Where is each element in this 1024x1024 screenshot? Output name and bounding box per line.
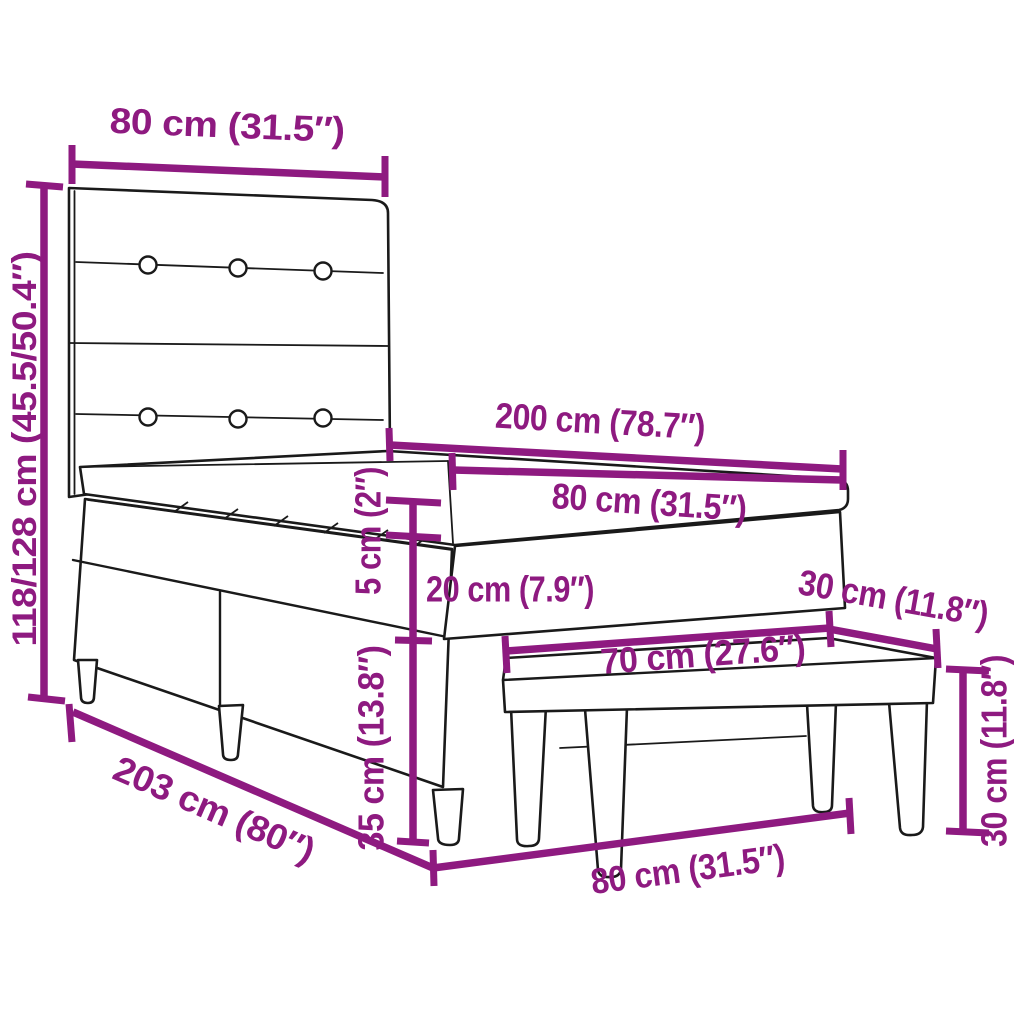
dimension-bench-height: 30 cm (11.8″) xyxy=(946,655,1015,847)
button xyxy=(140,409,157,426)
bench-leg xyxy=(889,700,927,835)
bench-leg xyxy=(511,706,546,846)
headboard-panel xyxy=(69,188,390,497)
bench-illustration xyxy=(503,638,936,877)
dim-label-mattress-length: 200 cm (78.7″) xyxy=(494,395,706,448)
dim-label-mattress-thickness: 20 cm (7.9″) xyxy=(426,569,594,610)
dimension-diagram: 80 cm (31.5″) 118/128 cm (45.5/50.4″) 20… xyxy=(0,0,1024,1024)
dim-label-base-height: 35 cm (13.8″) xyxy=(351,646,392,851)
button xyxy=(315,410,332,427)
bed-with-bench-drawing: 80 cm (31.5″) 118/128 cm (45.5/50.4″) 20… xyxy=(0,0,1024,1024)
dimension-bed-height: 118/128 cm (45.5/50.4″) xyxy=(6,184,65,701)
dimension-bed-width-bottom: 80 cm (31.5″) xyxy=(433,798,851,902)
headboard xyxy=(69,188,390,497)
dim-label-bench-depth: 30 cm (11.8″) xyxy=(795,561,991,635)
dim-label-headboard-width: 80 cm (31.5″) xyxy=(109,100,345,150)
dim-label-topper-thickness: 5 cm (2″) xyxy=(348,467,389,595)
dimension-headboard-width: 80 cm (31.5″) xyxy=(72,100,385,197)
bed-leg xyxy=(433,789,463,845)
button xyxy=(140,257,157,274)
bed-leg xyxy=(219,705,243,760)
button xyxy=(230,260,247,277)
button xyxy=(230,411,247,428)
dim-label-bed-height: 118/128 cm (45.5/50.4″) xyxy=(6,252,44,647)
button xyxy=(315,263,332,280)
bench-leg xyxy=(585,707,627,877)
bed-leg xyxy=(78,660,97,703)
bench-leg xyxy=(807,702,836,812)
dim-label-bench-height: 30 cm (11.8″) xyxy=(974,655,1015,847)
